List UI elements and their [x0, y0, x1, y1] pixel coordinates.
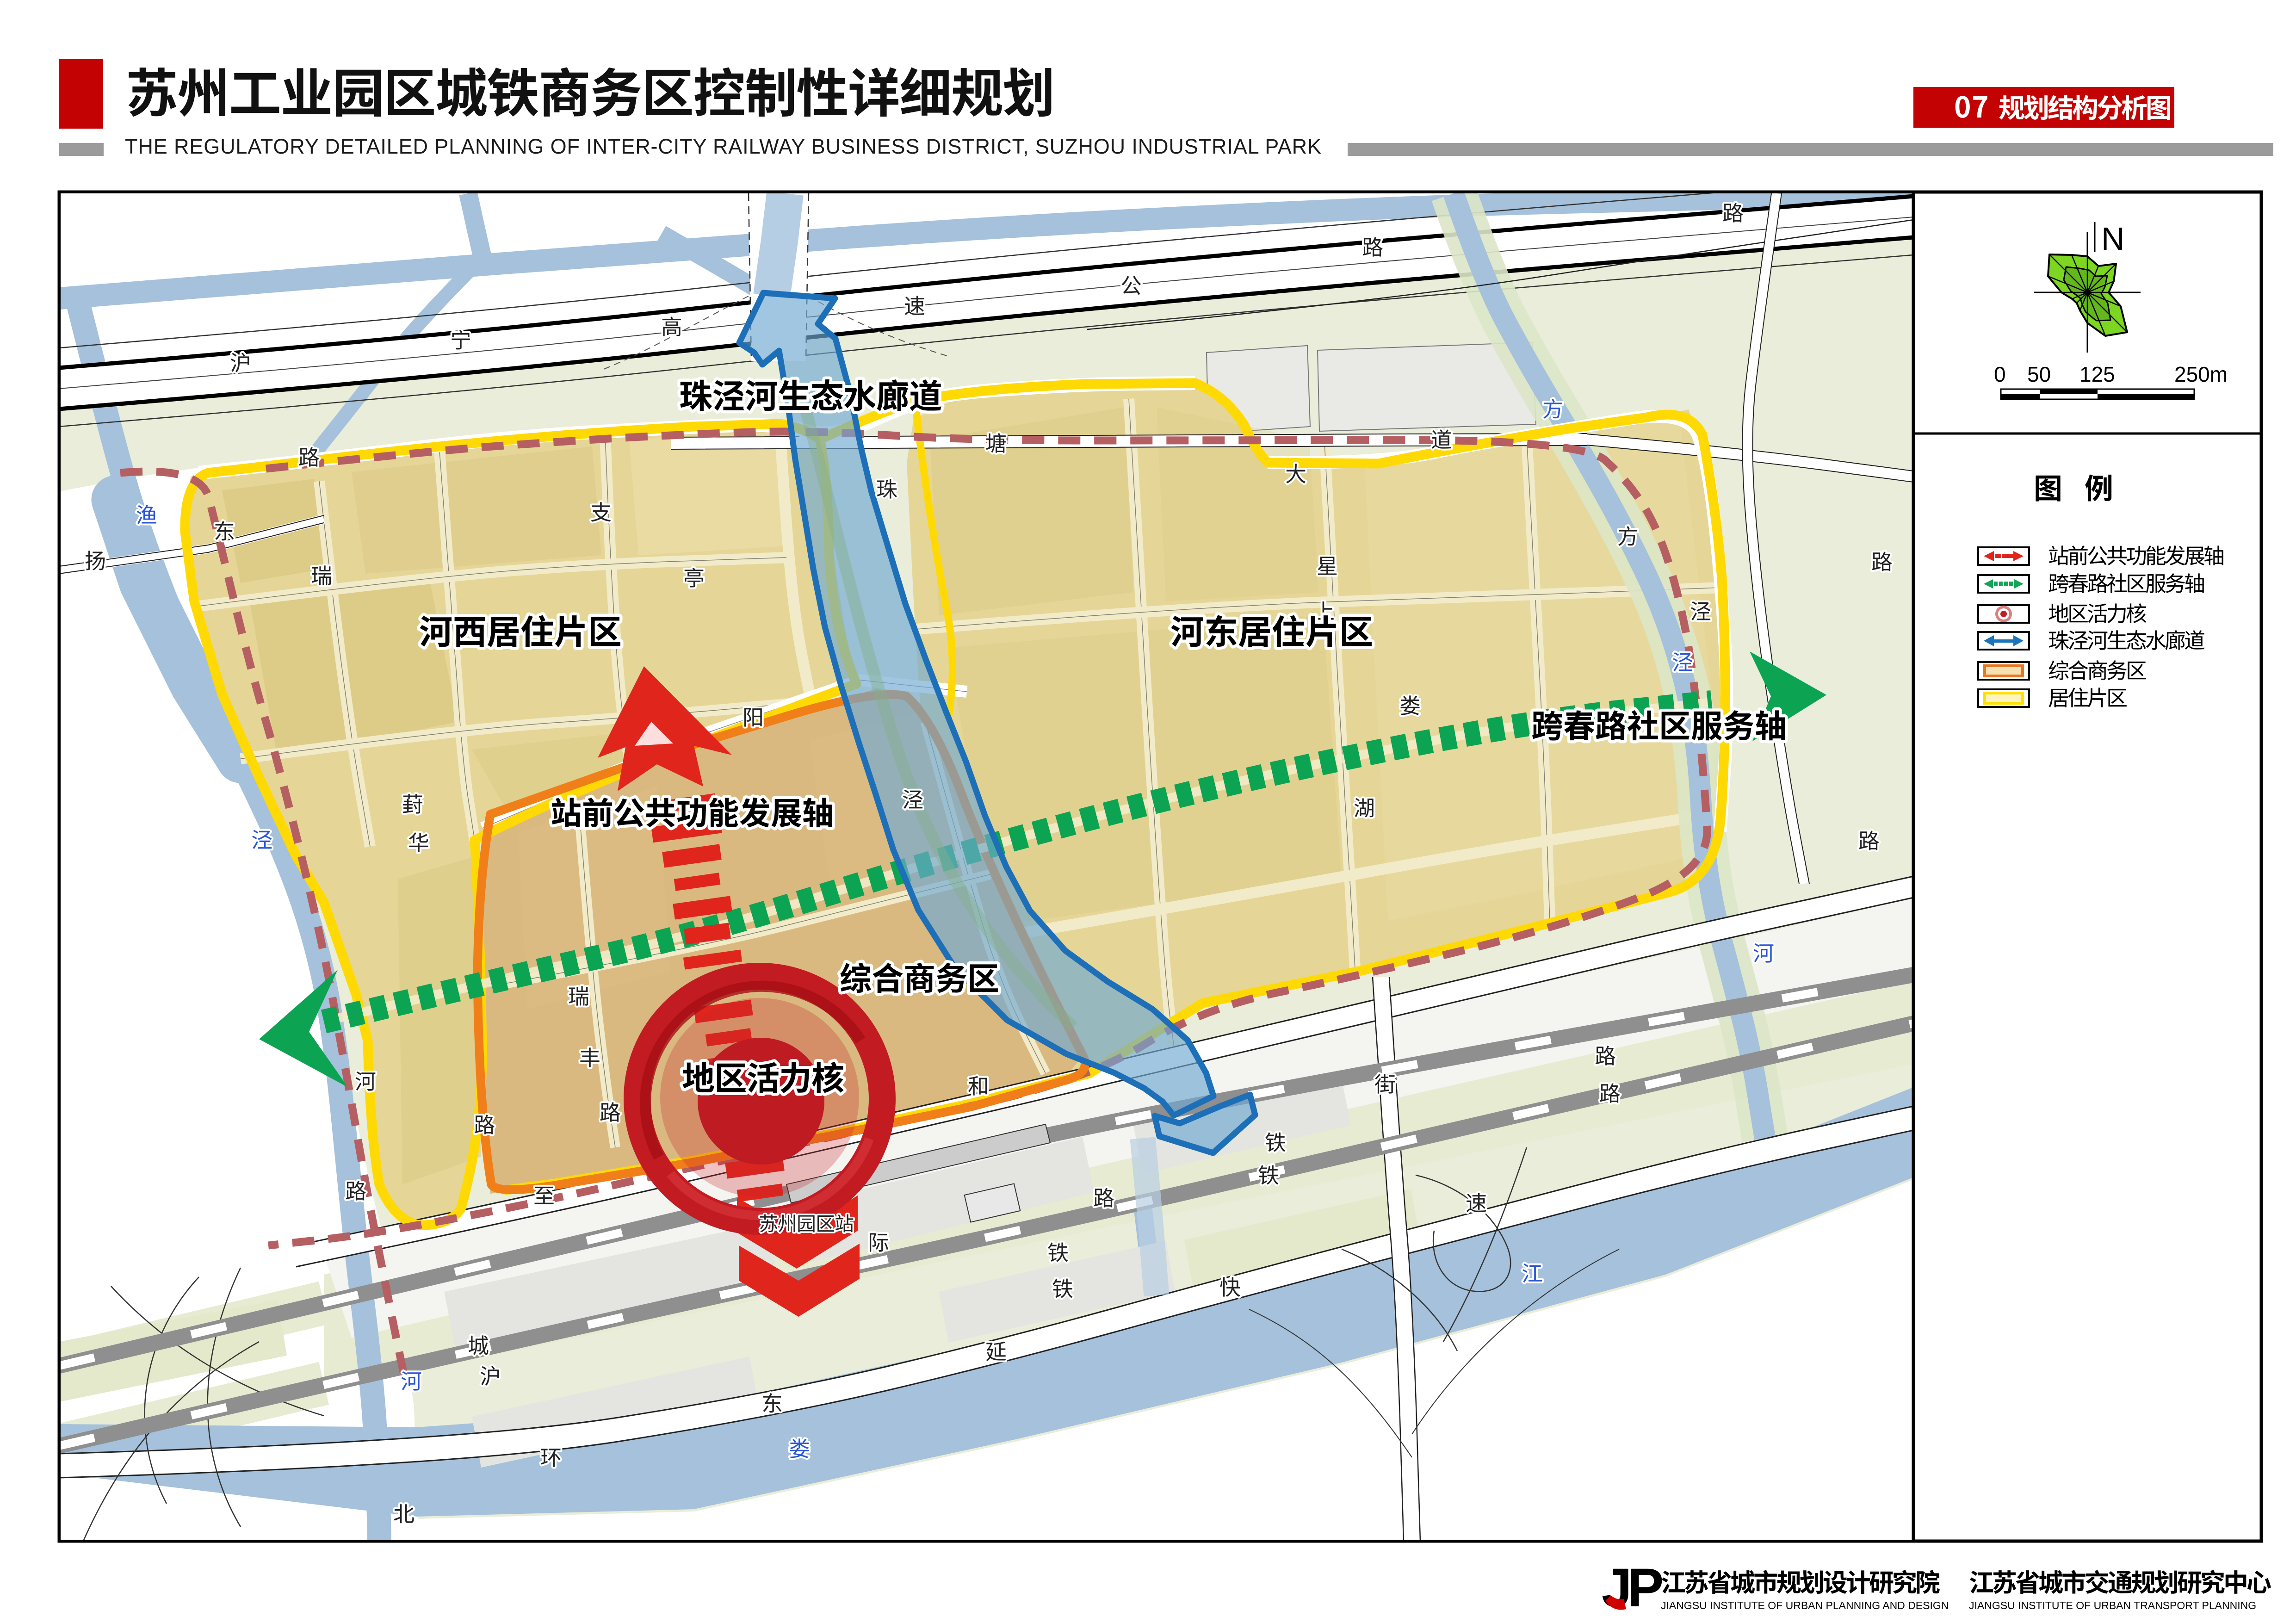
svg-text:125: 125 [2079, 362, 2115, 386]
svg-text:JP: JP [1602, 1557, 1662, 1618]
svg-text:250m: 250m [2174, 362, 2228, 386]
svg-text:THE REGULATORY DETAILED PLANNI: THE REGULATORY DETAILED PLANNING OF INTE… [125, 135, 1321, 158]
svg-text:JIANGSU INSTITUTE OF URBAN TRA: JIANGSU INSTITUTE OF URBAN TRANSPORT PLA… [1969, 1599, 2256, 1611]
svg-text:0: 0 [1994, 362, 2006, 386]
svg-text:N: N [2101, 221, 2125, 257]
svg-text:50: 50 [2027, 362, 2051, 386]
svg-text:JIANGSU INSTITUTE OF URBAN PLA: JIANGSU INSTITUTE OF URBAN PLANNING AND … [1661, 1599, 1949, 1611]
